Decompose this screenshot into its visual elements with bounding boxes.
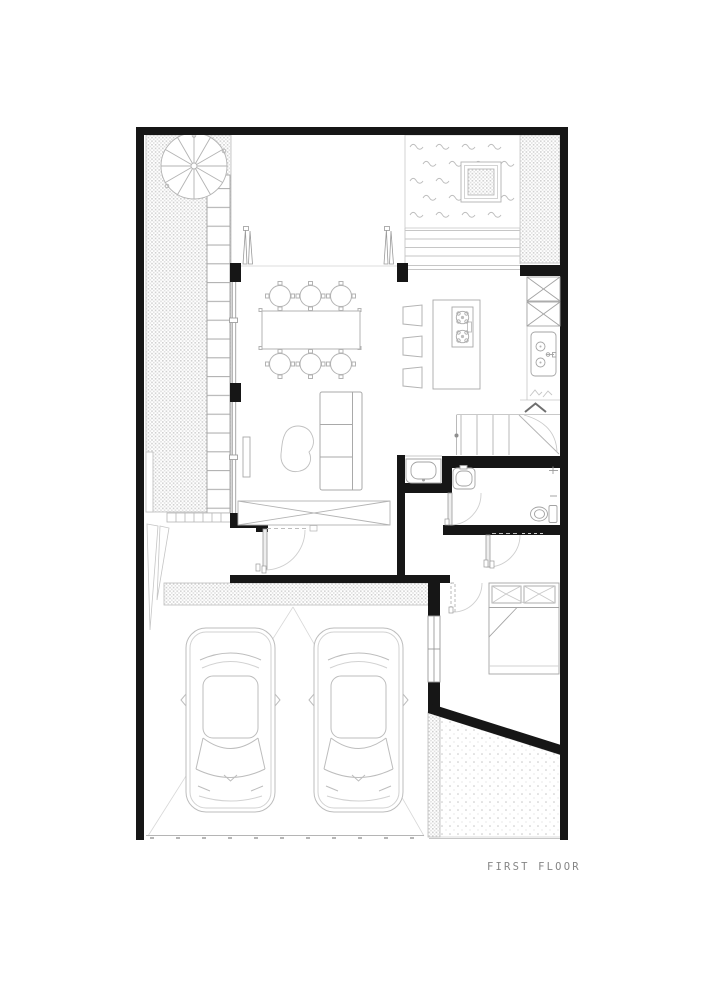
dining-table <box>259 309 361 350</box>
powder-room-sink <box>453 466 475 490</box>
garage-apron <box>164 583 429 605</box>
tv-console <box>238 501 390 525</box>
green-wall-ladder <box>207 175 230 513</box>
kitchen-island-cooktop <box>433 300 480 389</box>
drawing-sheet: FIRST FLOOR <box>0 0 707 1000</box>
car-right <box>309 628 408 812</box>
bar-stools <box>403 305 422 388</box>
bedroom-window <box>428 616 440 682</box>
understair-washbasin <box>405 456 442 483</box>
sofa <box>320 392 362 490</box>
kitchen-sink <box>531 332 556 376</box>
paper <box>0 0 707 1000</box>
floor-label: FIRST FLOOR <box>487 861 581 873</box>
double-bed <box>489 583 559 674</box>
wall-tv <box>243 437 250 477</box>
entry-steps <box>167 513 231 522</box>
floor-plan-drawing <box>0 0 707 1000</box>
pool-side-strip <box>520 135 560 263</box>
toilet <box>531 506 558 523</box>
coffee-table <box>281 426 314 472</box>
car-left <box>181 628 280 812</box>
pool-planter <box>461 162 501 202</box>
spiral-staircase <box>161 133 227 199</box>
